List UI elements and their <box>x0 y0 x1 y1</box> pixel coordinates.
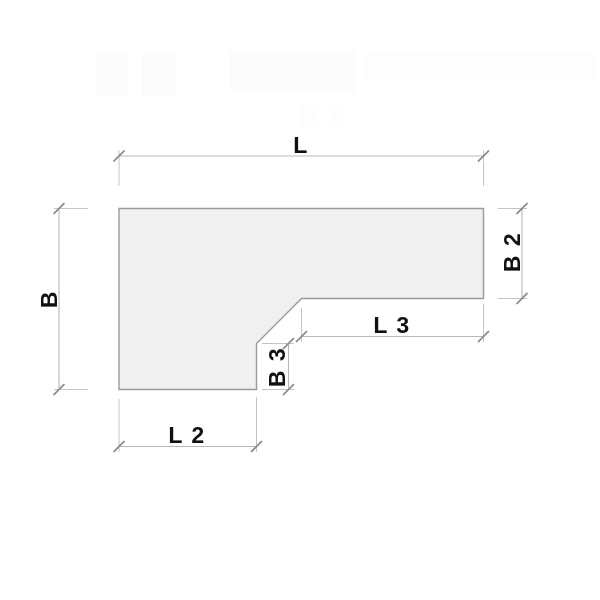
dimension-B2: B 2 <box>498 204 527 304</box>
watermark-dot <box>330 105 344 127</box>
dimension-L3: L 3 <box>297 304 489 342</box>
technical-drawing-svg: L B B 2 L 3 <box>0 0 600 600</box>
dimension-B3: B 3 <box>262 339 294 395</box>
watermark-block <box>230 50 355 92</box>
watermark <box>95 50 595 127</box>
dimension-label-B2: B 2 <box>499 232 525 272</box>
watermark-mark <box>142 52 176 96</box>
dimension-label-L: L <box>293 132 309 158</box>
dimension-label-B: B <box>36 290 62 308</box>
watermark-mark <box>95 52 129 96</box>
drawing-canvas: L B B 2 L 3 <box>0 0 600 600</box>
dimension-L2: L 2 <box>114 397 262 452</box>
dimension-label-L2: L 2 <box>168 422 205 448</box>
watermark-block <box>365 52 595 78</box>
watermark-dot <box>300 105 318 127</box>
dimension-L: L <box>114 132 489 186</box>
dimension-B: B <box>36 204 88 395</box>
dimension-label-B3: B 3 <box>264 347 290 387</box>
dimension-label-L3: L 3 <box>373 312 410 338</box>
